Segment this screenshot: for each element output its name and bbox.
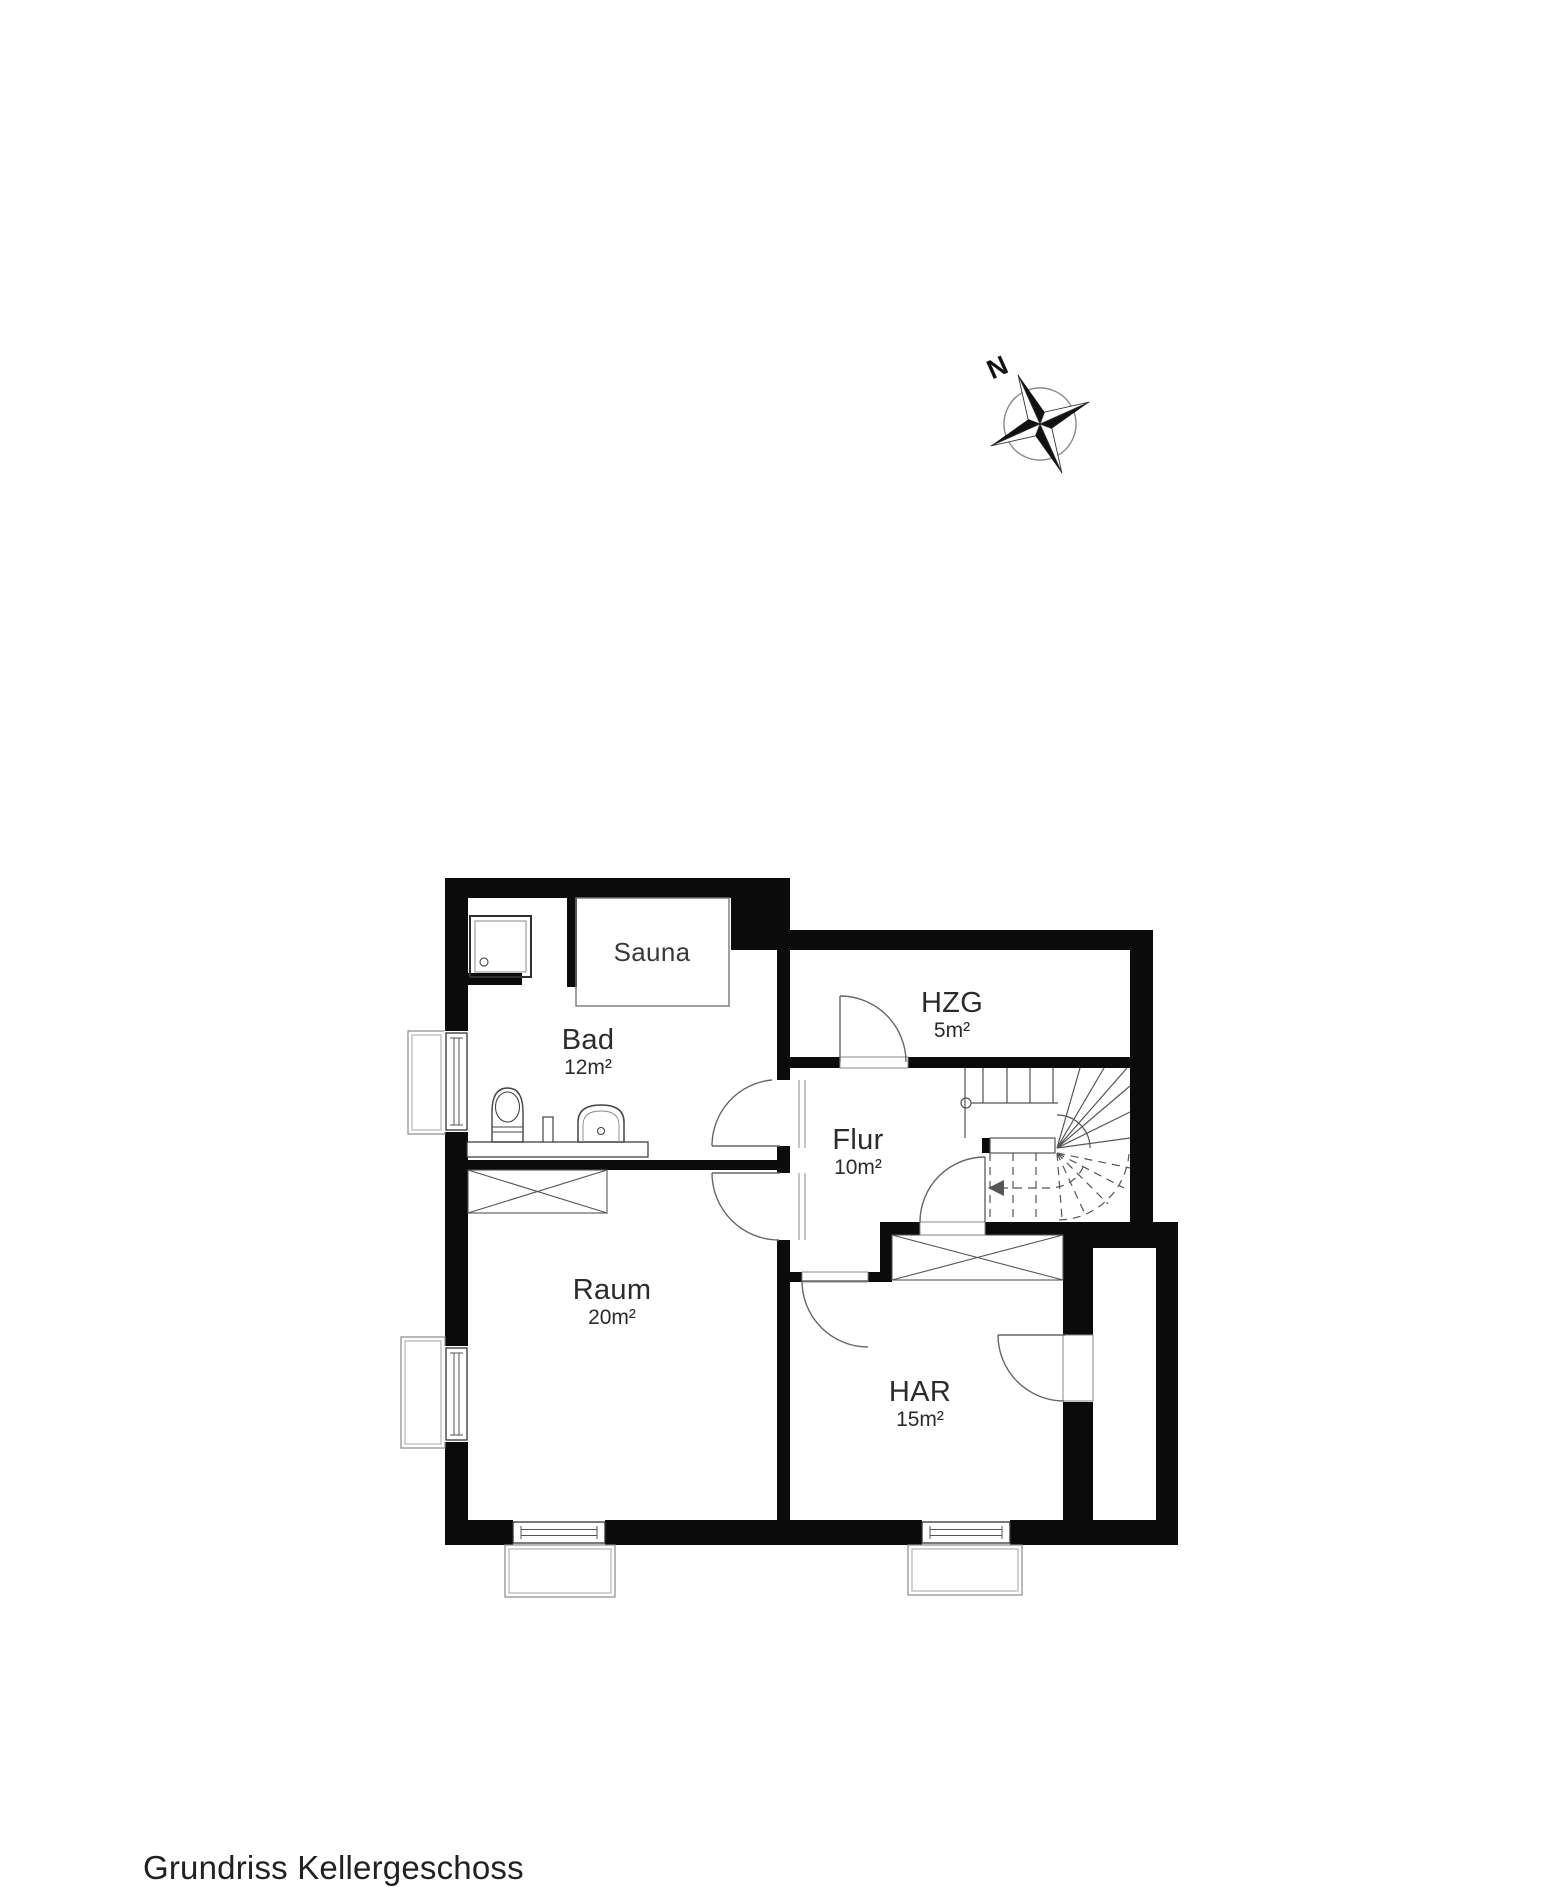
page-title: Grundriss Kellergeschoss [143, 1849, 524, 1887]
light-well-raum-south-window [505, 1545, 615, 1597]
door-hzg [840, 996, 906, 1062]
window-bad-west [444, 1031, 470, 1132]
light-well-bad-window [408, 1031, 445, 1134]
hatch-box-raum [468, 1170, 607, 1213]
door-flur-har [802, 1281, 868, 1347]
door-bad [712, 1080, 780, 1146]
room-name-bad: Bad [562, 1024, 615, 1056]
room-name-hzg: HZG [921, 987, 983, 1019]
window-raum-south [513, 1521, 605, 1544]
room-area-raum: 20m² [573, 1306, 652, 1330]
compass-rose-icon: N [957, 325, 1112, 495]
door-thresholds [799, 1057, 1093, 1401]
door-raum [712, 1173, 780, 1240]
toilet [492, 1088, 523, 1142]
sink [578, 1105, 624, 1142]
room-label-hzg: HZG 5m² [921, 987, 983, 1043]
compass-north-label: N [982, 350, 1012, 385]
room-name-flur: Flur [832, 1124, 883, 1156]
room-area-flur: 10m² [832, 1156, 883, 1180]
vanity-counter [467, 1142, 648, 1157]
light-well-har-window [908, 1545, 1022, 1595]
light-well-raum-west-window [401, 1337, 445, 1448]
room-area-hzg: 5m² [921, 1019, 983, 1043]
floor-plan-drawing: N [0, 0, 1551, 1900]
room-area-har: 15m² [889, 1408, 951, 1432]
room-label-sauna: Sauna [614, 938, 691, 967]
room-name-sauna: Sauna [614, 938, 691, 967]
door-har-east [998, 1335, 1065, 1401]
window-har-south [922, 1521, 1010, 1544]
room-label-flur: Flur 10m² [832, 1124, 883, 1180]
counter-divider [543, 1117, 553, 1142]
staircase [961, 1068, 1130, 1220]
floor-plan-canvas: N Sauna Bad 12m² HZG 5m² Flur 10m² Raum … [0, 0, 1551, 1900]
room-label-raum: Raum 20m² [573, 1274, 652, 1330]
door-flur-south [920, 1157, 985, 1222]
room-label-har: HAR 15m² [889, 1376, 951, 1432]
shower [470, 916, 531, 977]
hatch-box-har [892, 1235, 1063, 1280]
room-name-raum: Raum [573, 1274, 652, 1306]
window-raum-west [444, 1346, 470, 1442]
room-label-bad: Bad 12m² [562, 1024, 615, 1080]
room-name-har: HAR [889, 1376, 951, 1408]
room-area-bad: 12m² [562, 1056, 615, 1080]
